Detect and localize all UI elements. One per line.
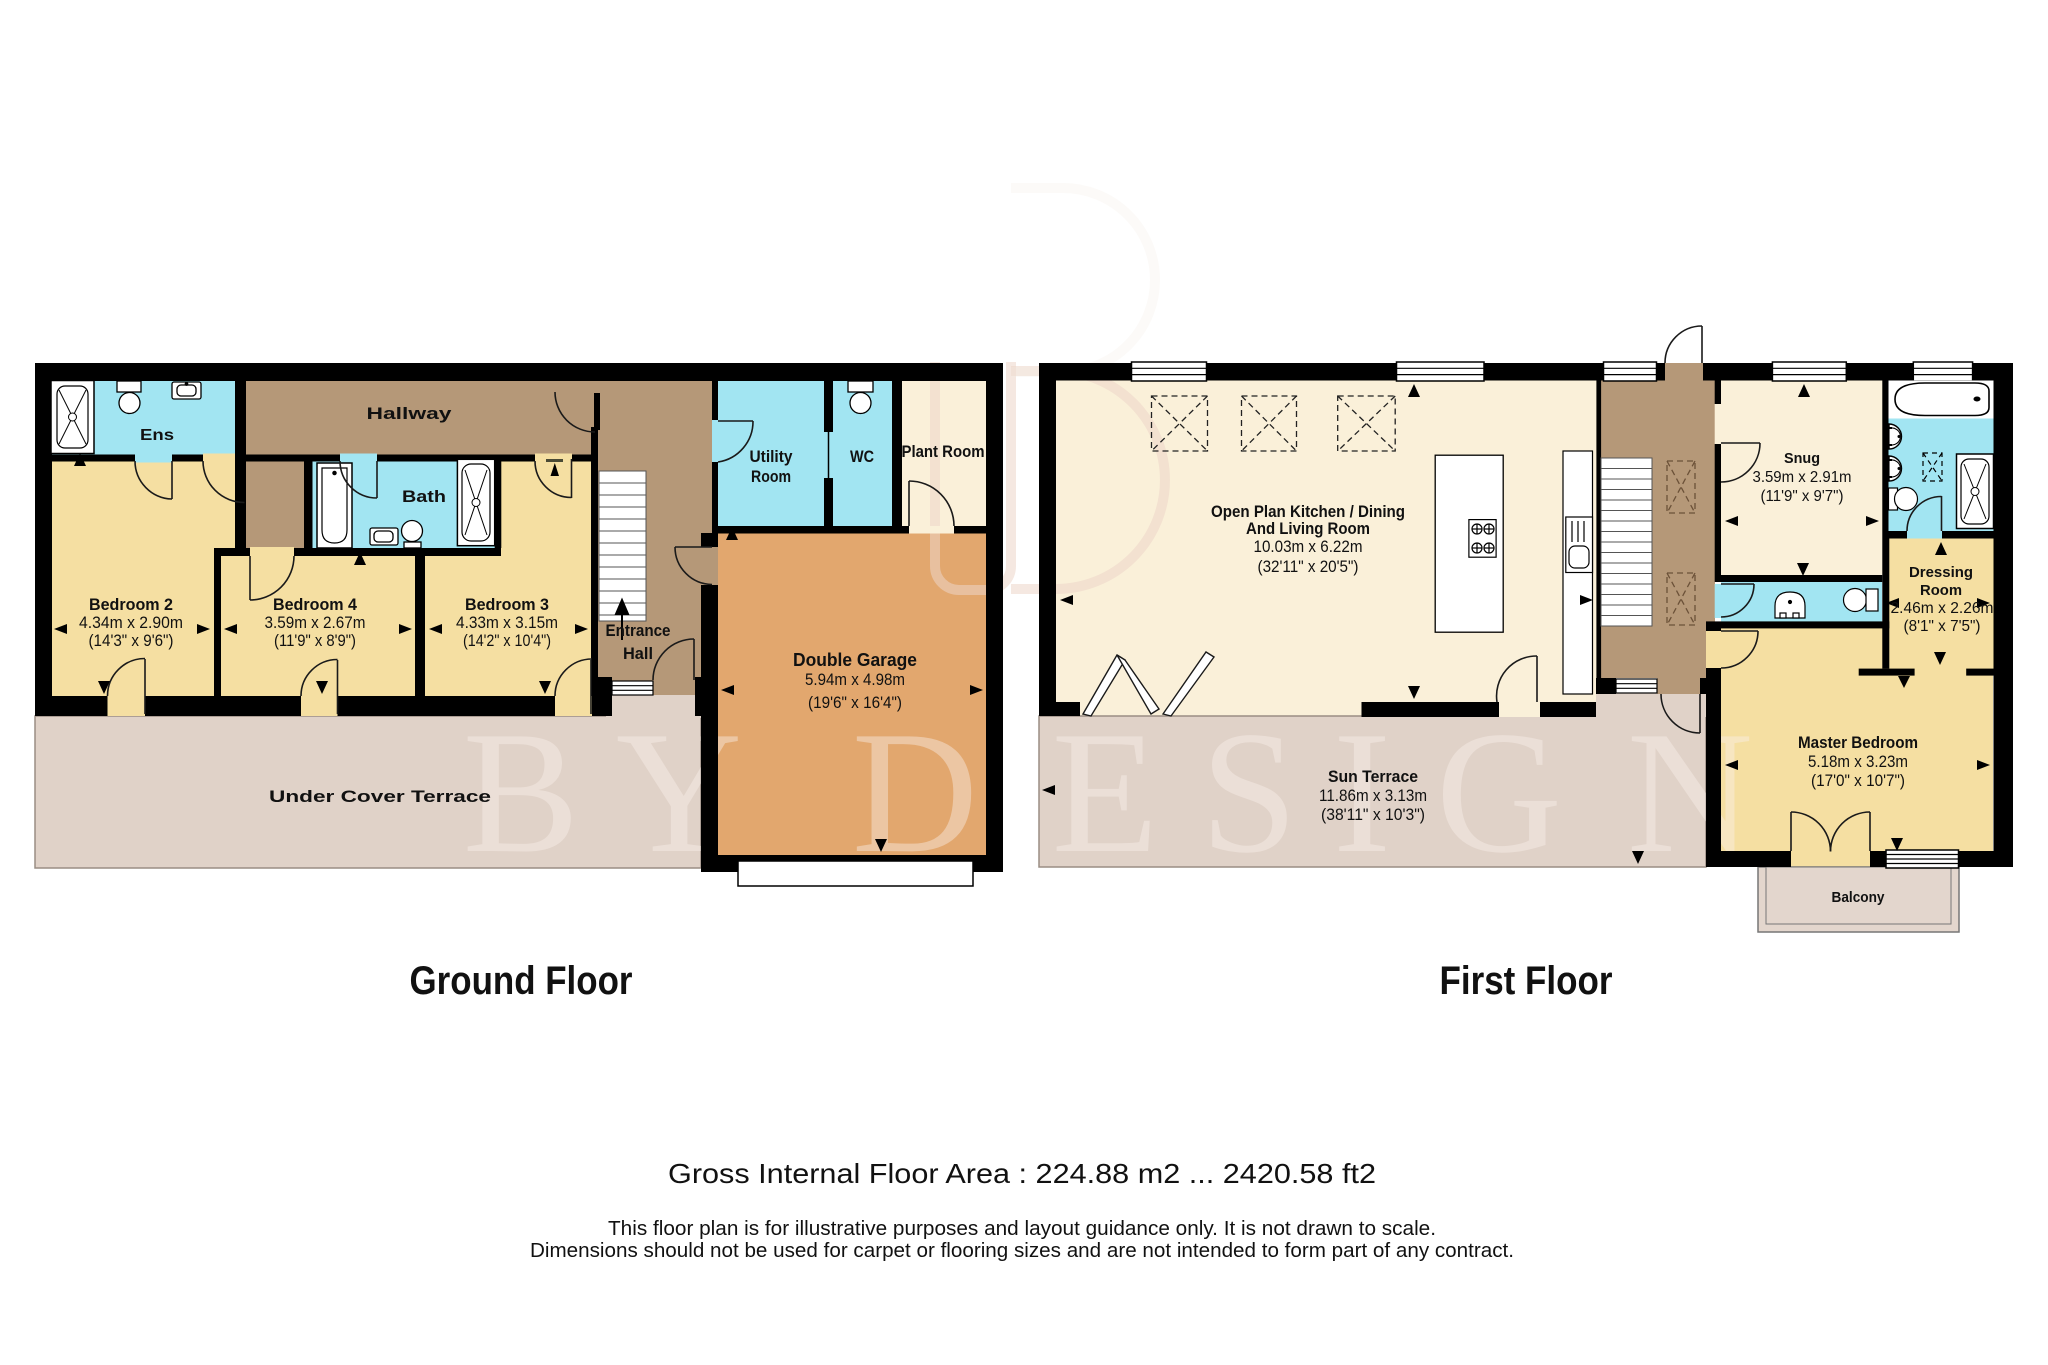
svg-text:And Living Room: And Living Room <box>1246 519 1370 538</box>
svg-text:5.94m x 4.98m: 5.94m x 4.98m <box>805 670 905 689</box>
svg-text:Room: Room <box>1920 582 1962 599</box>
svg-text:(38'11" x 10'3"): (38'11" x 10'3") <box>1321 805 1425 824</box>
svg-text:Dressing: Dressing <box>1909 564 1973 581</box>
svg-text:Ens: Ens <box>140 427 174 444</box>
svg-text:Under Cover Terrace: Under Cover Terrace <box>269 787 491 806</box>
svg-text:(19'6" x 16'4"): (19'6" x 16'4") <box>808 693 902 712</box>
svg-text:Master Bedroom: Master Bedroom <box>1798 733 1918 752</box>
svg-text:Plant Room: Plant Room <box>902 442 985 461</box>
svg-text:(11'9" x 8'9"): (11'9" x 8'9") <box>274 631 356 650</box>
svg-text:10.03m x 6.22m: 10.03m x 6.22m <box>1254 537 1363 556</box>
svg-text:4.33m x 3.15m: 4.33m x 3.15m <box>456 613 558 632</box>
svg-text:(14'3" x 9'6"): (14'3" x 9'6") <box>89 631 174 650</box>
svg-text:Snug: Snug <box>1784 451 1820 467</box>
svg-text:(11'9" x 9'7"): (11'9" x 9'7") <box>1761 488 1844 505</box>
svg-text:Ground Floor: Ground Floor <box>410 959 633 1003</box>
svg-text:(8'1" x 7'5"): (8'1" x 7'5") <box>1904 618 1981 635</box>
svg-text:WC: WC <box>850 447 874 466</box>
svg-text:Bedroom 2: Bedroom 2 <box>89 595 173 614</box>
svg-text:5.18m x 3.23m: 5.18m x 3.23m <box>1808 752 1908 771</box>
svg-text:Hall: Hall <box>623 644 653 663</box>
svg-text:3.59m x 2.91m: 3.59m x 2.91m <box>1753 469 1852 486</box>
svg-text:E: E <box>1052 695 1159 889</box>
svg-text:G: G <box>1436 695 1562 889</box>
svg-text:S: S <box>1200 695 1297 889</box>
svg-text:Bedroom 4: Bedroom 4 <box>273 595 358 614</box>
svg-text:Balcony: Balcony <box>1832 889 1886 906</box>
svg-text:Utility: Utility <box>750 447 793 466</box>
svg-text:(14'2" x 10'4"): (14'2" x 10'4") <box>463 631 551 650</box>
svg-text:2.46m x 2.26m: 2.46m x 2.26m <box>1891 600 1994 617</box>
svg-text:First Floor: First Floor <box>1440 959 1613 1003</box>
svg-text:Double Garage: Double Garage <box>793 650 917 670</box>
svg-text:4.34m x 2.90m: 4.34m x 2.90m <box>79 613 183 632</box>
svg-text:Entrance: Entrance <box>606 621 671 640</box>
svg-text:11.86m x 3.13m: 11.86m x 3.13m <box>1319 786 1427 805</box>
svg-text:Hallway: Hallway <box>367 404 453 423</box>
svg-text:Dimensions should not be used: Dimensions should not be used for carpet… <box>530 1240 1514 1262</box>
svg-text:Bedroom 3: Bedroom 3 <box>465 595 549 614</box>
svg-text:3.59m x 2.67m: 3.59m x 2.67m <box>265 613 366 632</box>
svg-text:Sun Terrace: Sun Terrace <box>1328 767 1418 786</box>
svg-text:(17'0" x 10'7"): (17'0" x 10'7") <box>1811 771 1905 790</box>
svg-text:Bath: Bath <box>402 487 446 506</box>
svg-text:(32'11" x 20'5"): (32'11" x 20'5") <box>1258 557 1359 576</box>
svg-text:Gross Internal Floor Area : 22: Gross Internal Floor Area : 224.88 m2 ..… <box>668 1158 1376 1189</box>
svg-text:Room: Room <box>751 467 791 486</box>
svg-text:This floor plan is for illustr: This floor plan is for illustrative purp… <box>608 1218 1436 1240</box>
